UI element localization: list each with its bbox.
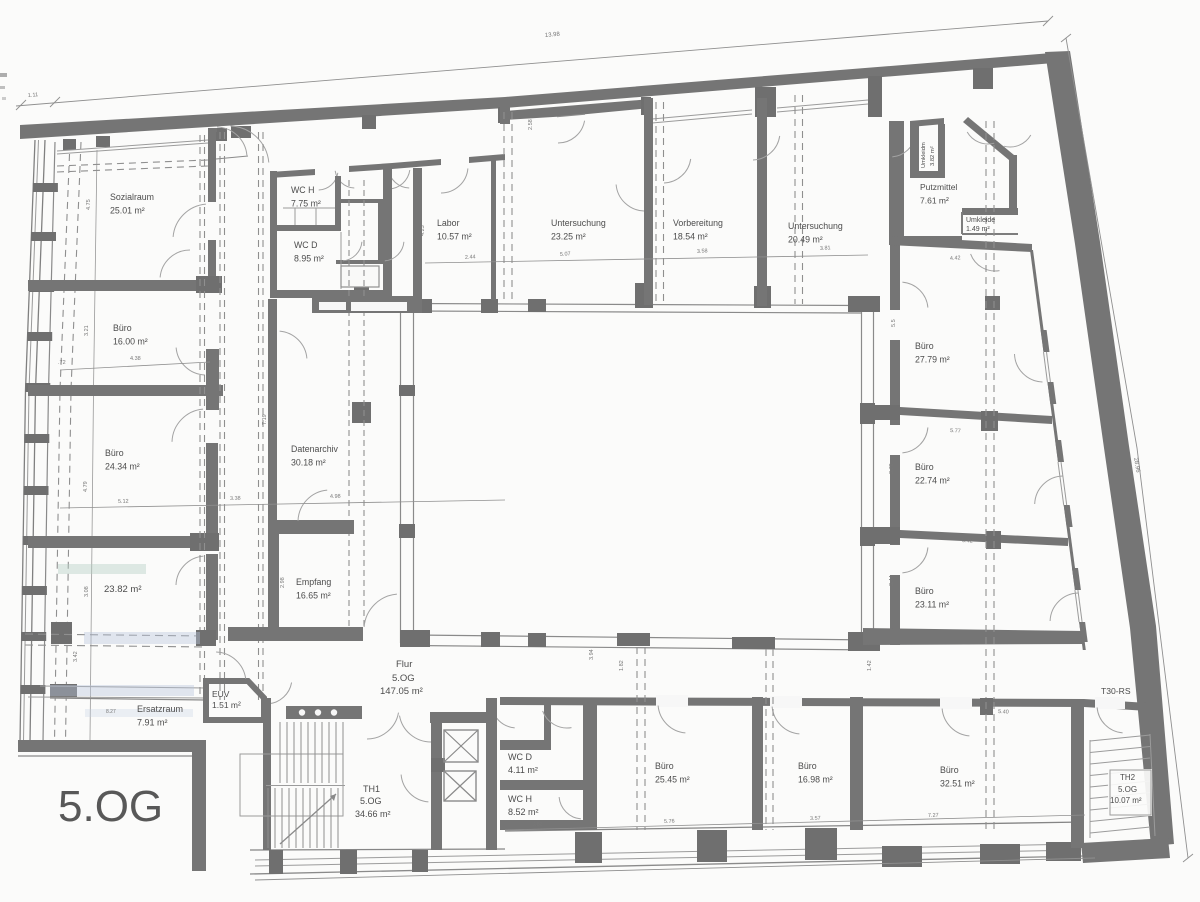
svg-text:5.OG: 5.OG (360, 796, 382, 806)
svg-text:23.25 m²: 23.25 m² (551, 232, 586, 242)
svg-text:10.07 m²: 10.07 m² (1110, 796, 1142, 805)
svg-text:5.5: 5.5 (891, 319, 897, 327)
svg-text:10.57 m²: 10.57 m² (437, 232, 472, 242)
svg-text:7.61 m²: 7.61 m² (920, 196, 949, 206)
svg-text:27.79 m²: 27.79 m² (915, 355, 950, 365)
svg-text:WC D: WC D (294, 240, 317, 250)
svg-text:Büro: Büro (915, 586, 934, 596)
svg-text:8.95 m²: 8.95 m² (294, 254, 324, 264)
svg-text:2.98: 2.98 (280, 577, 286, 588)
svg-text:32.51 m²: 32.51 m² (940, 779, 975, 789)
svg-text:3.42: 3.42 (73, 651, 79, 662)
svg-text:5.40: 5.40 (998, 709, 1009, 716)
svg-text:Untersuchung: Untersuchung (551, 218, 606, 228)
svg-text:TH2: TH2 (1120, 773, 1136, 782)
svg-text:7.75 m²: 7.75 m² (291, 199, 321, 209)
svg-text:147.05 m²: 147.05 m² (380, 686, 423, 697)
svg-text:4.23: 4.23 (420, 225, 426, 236)
svg-text:4.42: 4.42 (950, 255, 961, 262)
svg-text:WC H: WC H (508, 794, 532, 804)
svg-text:3.08: 3.08 (84, 586, 90, 597)
svg-text:23.82 m²: 23.82 m² (104, 584, 142, 595)
svg-text:3.81: 3.81 (820, 245, 831, 252)
svg-text:WC D: WC D (508, 752, 532, 762)
svg-text:25.45 m²: 25.45 m² (655, 775, 690, 785)
svg-text:5.07: 5.07 (560, 251, 571, 258)
svg-text:Flur: Flur (396, 659, 412, 670)
svg-text:7.27: 7.27 (928, 813, 939, 819)
svg-text:1.51 m²: 1.51 m² (212, 700, 241, 710)
svg-text:4.11 m²: 4.11 m² (508, 765, 538, 775)
svg-text:30.18 m²: 30.18 m² (291, 458, 326, 468)
svg-text:Umkleidm: Umkleidm (921, 142, 927, 168)
svg-text:2.44: 2.44 (465, 254, 476, 261)
svg-text:18.54 m²: 18.54 m² (673, 232, 708, 242)
svg-text:Büro: Büro (915, 462, 934, 472)
svg-text:Umkleide: Umkleide (966, 217, 995, 224)
svg-text:5.OG: 5.OG (392, 673, 415, 684)
svg-text:3.44: 3.44 (889, 575, 895, 586)
svg-text:3.79: 3.79 (889, 463, 895, 474)
svg-text:22.74 m²: 22.74 m² (915, 476, 950, 486)
svg-text:3.94: 3.94 (589, 649, 595, 660)
svg-text:4.38: 4.38 (130, 356, 141, 362)
svg-text:4.98: 4.98 (330, 494, 341, 500)
svg-text:Ersatzraum: Ersatzraum (137, 704, 183, 714)
svg-text:Vorbereitung: Vorbereitung (673, 218, 723, 228)
svg-text:4.79: 4.79 (83, 481, 89, 492)
svg-text:5.42: 5.42 (962, 538, 973, 545)
svg-text:5.OG: 5.OG (58, 782, 163, 831)
svg-text:Untersuchung: Untersuchung (788, 221, 843, 231)
svg-text:4.75: 4.75 (86, 199, 92, 210)
svg-text:16.98 m²: 16.98 m² (798, 775, 833, 785)
svg-text:25.01 m²: 25.01 m² (110, 206, 145, 216)
svg-text:3.57: 3.57 (810, 816, 821, 822)
svg-text:1.11: 1.11 (28, 92, 39, 99)
svg-text:TH1: TH1 (363, 784, 380, 794)
svg-text:5.77: 5.77 (950, 428, 961, 435)
svg-text:3.58: 3.58 (697, 248, 708, 255)
svg-text:5.OG: 5.OG (1118, 785, 1137, 794)
svg-text:20.49 m²: 20.49 m² (788, 235, 823, 245)
svg-text:Büro: Büro (798, 761, 817, 771)
svg-text:.72: .72 (58, 360, 66, 366)
svg-text:Büro: Büro (915, 341, 934, 351)
svg-text:3.82: 3.82 (532, 822, 543, 828)
svg-text:EUV: EUV (212, 689, 230, 699)
svg-text:Büro: Büro (940, 765, 959, 775)
svg-text:Putzmittel: Putzmittel (920, 182, 957, 192)
svg-text:Büro: Büro (113, 323, 132, 333)
svg-text:2.58: 2.58 (528, 119, 534, 130)
svg-text:7.19: 7.19 (262, 414, 268, 425)
svg-text:8.27: 8.27 (106, 709, 116, 715)
svg-text:Empfang: Empfang (296, 577, 331, 587)
svg-text:T30-RS: T30-RS (1101, 686, 1131, 696)
svg-text:1.49 m²: 1.49 m² (966, 226, 990, 233)
svg-text:5.76: 5.76 (664, 819, 675, 825)
svg-text:Sozialraum: Sozialraum (110, 192, 154, 202)
svg-text:3.82 m²: 3.82 m² (930, 146, 936, 166)
svg-text:8.52 m²: 8.52 m² (508, 807, 539, 817)
svg-text:Büro: Büro (105, 448, 124, 458)
svg-text:34.66 m²: 34.66 m² (355, 809, 391, 819)
svg-text:24.34 m²: 24.34 m² (105, 462, 140, 472)
svg-text:Labor: Labor (437, 218, 460, 228)
svg-text:1.82: 1.82 (619, 660, 625, 671)
svg-text:3.38: 3.38 (230, 496, 241, 502)
svg-text:16.65 m²: 16.65 m² (296, 591, 331, 601)
svg-text:5.12: 5.12 (118, 499, 129, 505)
svg-text:23.11 m²: 23.11 m² (915, 600, 949, 610)
svg-text:1.42: 1.42 (867, 660, 873, 671)
svg-text:7.91 m²: 7.91 m² (137, 718, 168, 728)
svg-text:Datenarchiv: Datenarchiv (291, 444, 339, 454)
svg-text:Büro: Büro (655, 761, 674, 771)
svg-text:WC H: WC H (291, 185, 314, 195)
svg-text:3.21: 3.21 (84, 325, 90, 336)
svg-text:16.00 m²: 16.00 m² (113, 337, 148, 347)
